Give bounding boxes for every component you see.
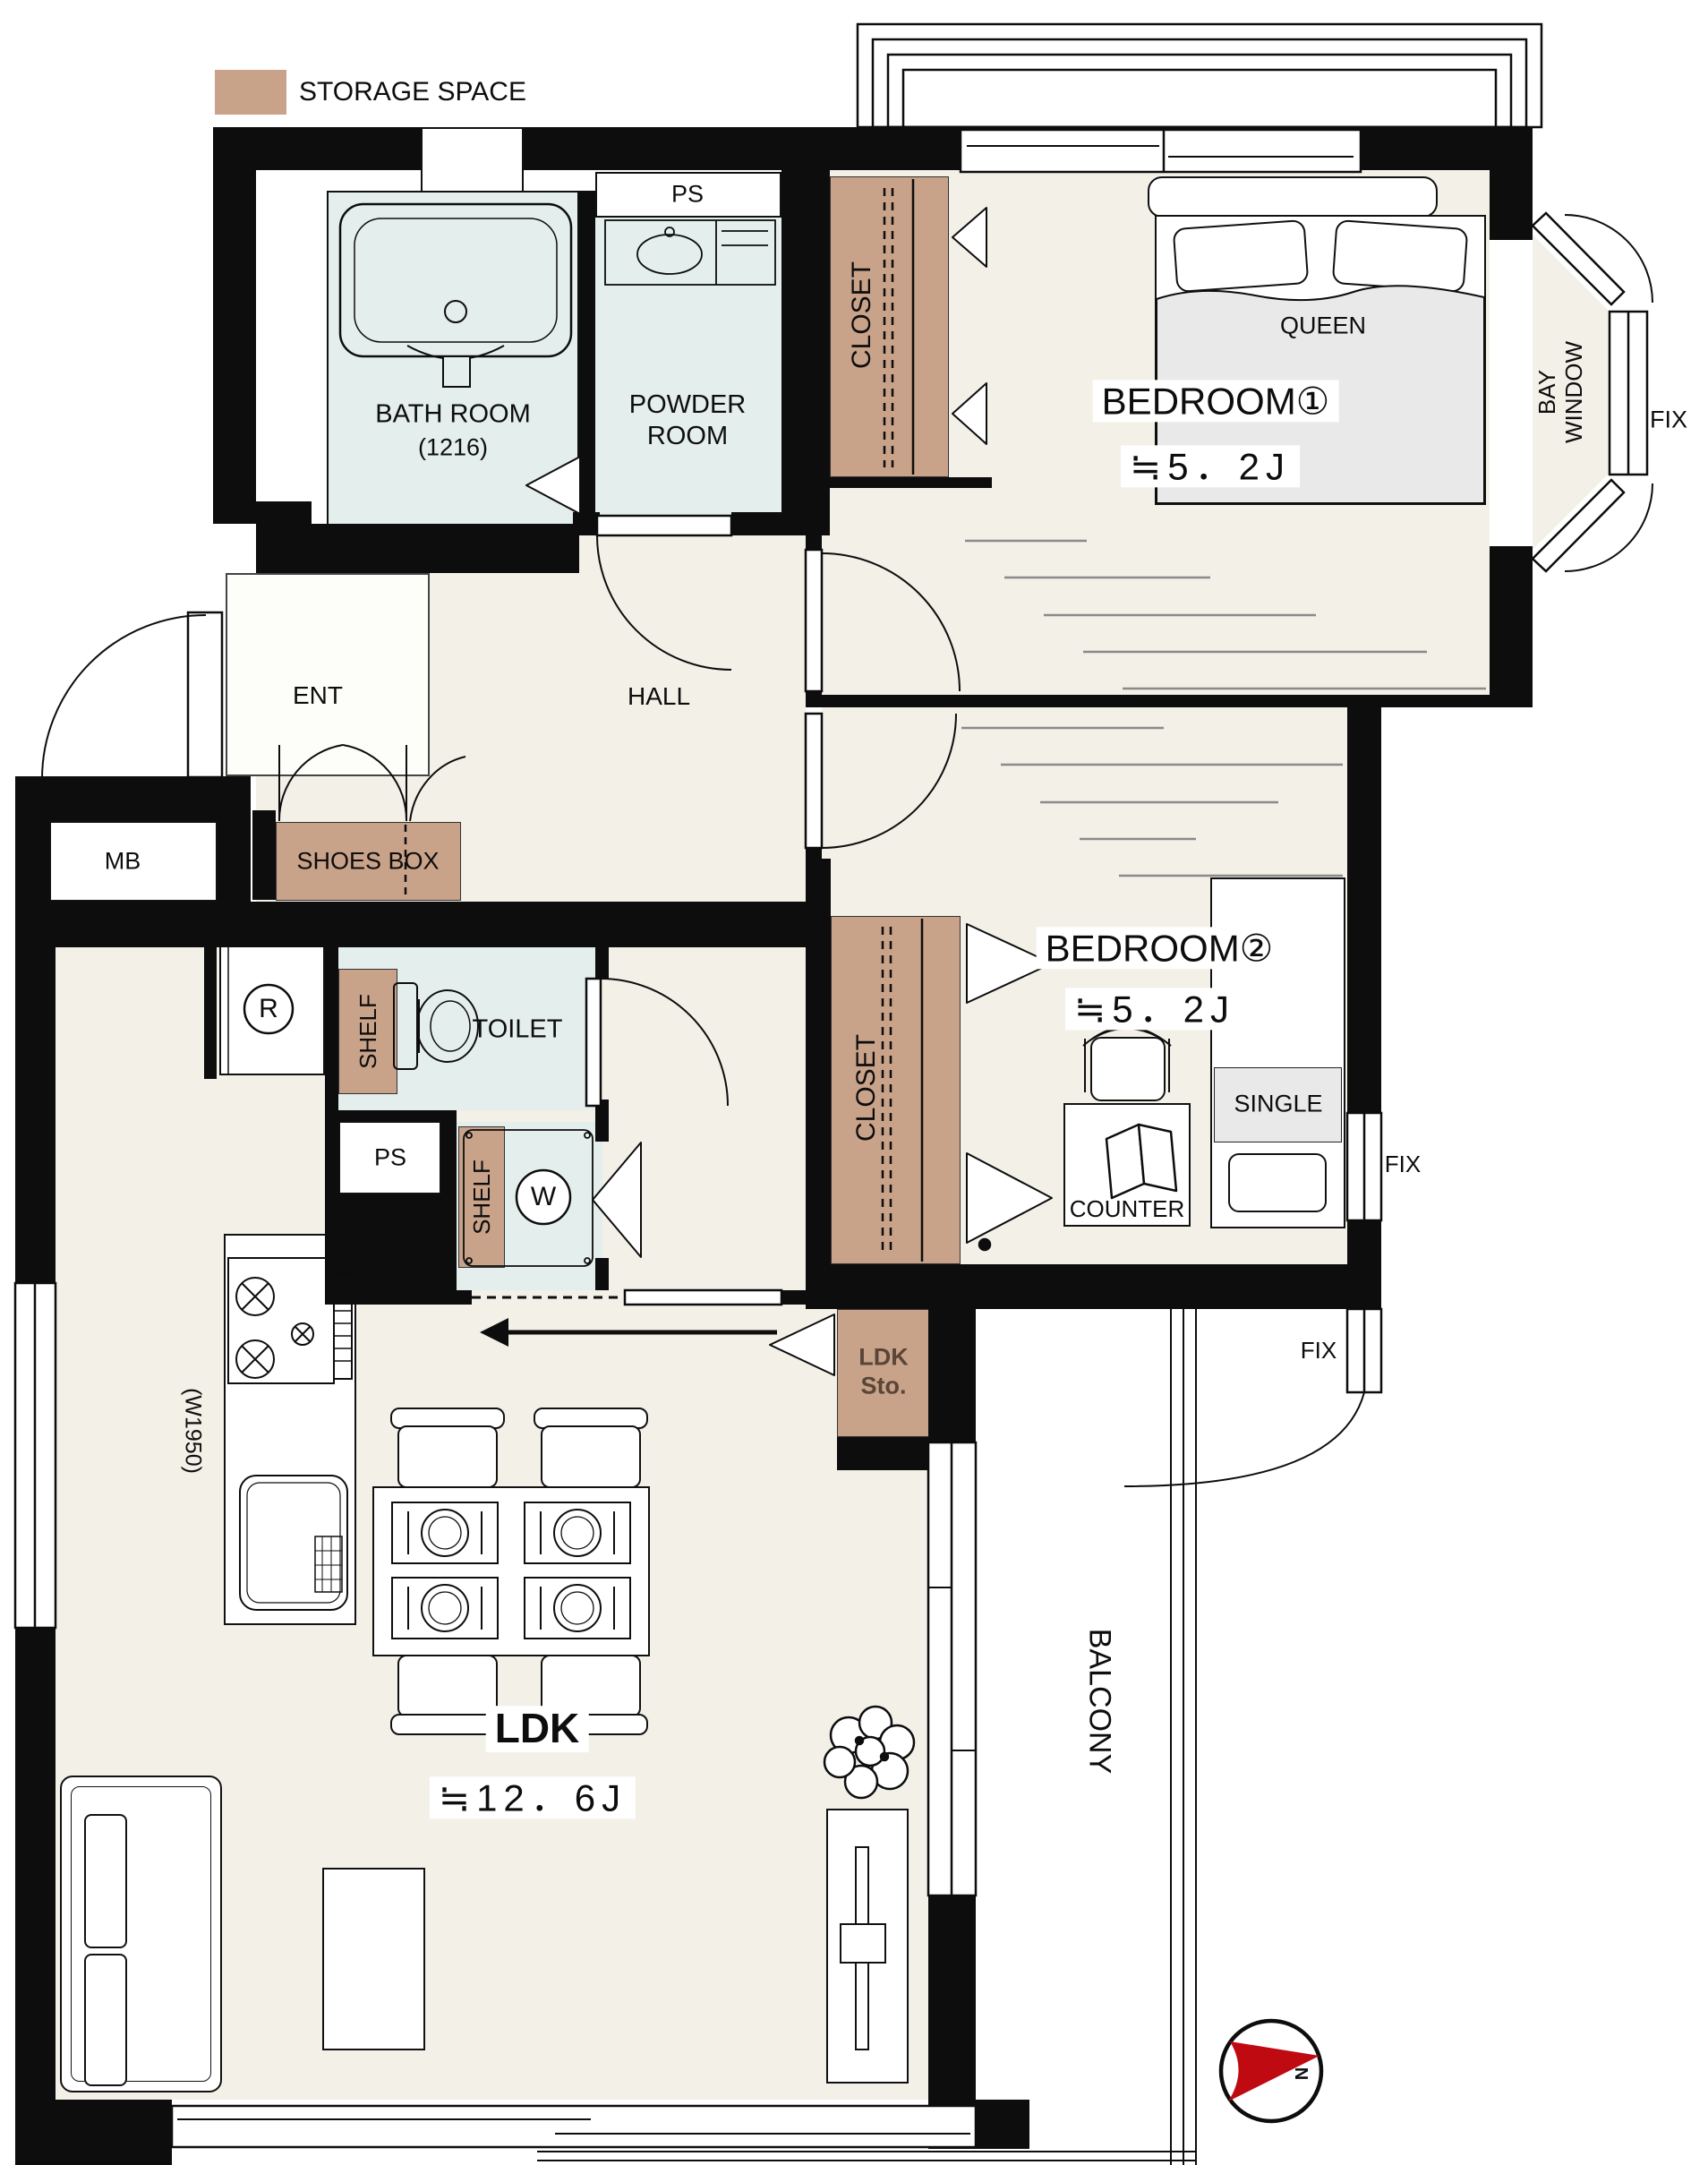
washer-bifold — [593, 1142, 641, 1257]
stove — [228, 1258, 352, 1383]
ldk-label: LDK — [486, 1706, 589, 1752]
shoes-door-arc-3 — [410, 757, 465, 821]
kitchen-width-label: (W1950) — [181, 1388, 205, 1474]
bedroom1-door-leaf — [806, 550, 822, 691]
ldk-bottom-window — [172, 2106, 976, 2147]
fix-bedroom2-bottom-label: FIX — [1301, 1338, 1337, 1363]
closet1-bifold-bottom — [952, 383, 986, 444]
floor-hatch — [961, 541, 1486, 876]
entry-door-leaf — [188, 612, 222, 777]
bedroom1-size-label: ≒5．2J — [1121, 445, 1300, 487]
bathroom-bifold — [526, 457, 580, 514]
bathroom-label: BATH ROOM — [375, 400, 530, 428]
ldk-size-label: ≒12．6J — [430, 1776, 636, 1818]
ldk-sto-label-line1: LDK — [858, 1344, 909, 1370]
powder-door-leaf — [597, 516, 731, 535]
bedroom1-door-arc — [822, 553, 960, 691]
toilet-fixture — [394, 983, 478, 1069]
single-bed-label: SINGLE — [1234, 1091, 1322, 1117]
washer-label: W — [531, 1183, 556, 1211]
upper-veranda-outline — [858, 24, 1541, 127]
refrigerator-label: R — [259, 995, 278, 1023]
shoes-door-arc-2 — [343, 745, 406, 821]
toilet-label: TOILET — [473, 1015, 563, 1043]
hall-label: HALL — [628, 683, 690, 710]
ps-kitchen-label: PS — [374, 1144, 406, 1170]
shoes-door-arc-1 — [279, 745, 343, 821]
mb-label: MB — [105, 848, 141, 874]
bifold-doors — [526, 208, 1052, 1375]
bedroom2-door-leaf — [806, 714, 822, 848]
bedroom2-bottom-fix — [1124, 1309, 1381, 1486]
door-leaves — [188, 516, 822, 1305]
shelf-toilet-label: SHELF — [355, 994, 380, 1069]
bedroom1-label: BEDROOM① — [1093, 380, 1339, 422]
toilet-door-arc — [601, 979, 728, 1106]
bedroom2-door-arc — [822, 714, 956, 848]
legend-label: STORAGE SPACE — [299, 78, 526, 107]
bay-window-label: BAY WINDOW — [1534, 334, 1588, 450]
entry-door-arc — [42, 615, 206, 779]
bedroom2-size-label: ≒5．2J — [1065, 988, 1244, 1030]
shelf-washer-label: SHELF — [469, 1160, 494, 1235]
powder-room-label: POWDER ROOM — [616, 389, 759, 452]
plant — [824, 1707, 914, 1798]
floor-plan: STORAGE SPACE PS BATH ROOM (1216) POWDER… — [0, 0, 1708, 2165]
balcony-label: BALCONY — [1083, 1629, 1116, 1775]
kitchen-sink — [240, 1476, 347, 1610]
fix-bedroom2-side-label: FIX — [1385, 1151, 1421, 1177]
fix-bay-label: FIX — [1650, 406, 1687, 432]
ldk-balcony-window — [928, 1442, 976, 1895]
ldk-sto-bifold — [770, 1314, 834, 1375]
powder-vanity — [605, 220, 775, 285]
closet2-label: CLOSET — [852, 1034, 881, 1142]
closet1-label: CLOSET — [848, 261, 876, 369]
ldk-sliding-door-panel — [625, 1290, 781, 1305]
ent-label: ENT — [293, 682, 343, 709]
queen-bed-label: QUEEN — [1280, 312, 1366, 338]
bathtub — [340, 204, 571, 387]
bathroom-size-label: (1216) — [418, 434, 488, 460]
desk-chair-back — [1083, 1027, 1171, 1092]
closet2-bifold-bottom — [967, 1153, 1052, 1243]
bedroom2-fix-window — [1347, 1113, 1381, 1220]
kitchen-left-window — [15, 1283, 56, 1628]
open-book — [1106, 1125, 1176, 1198]
counter-label: COUNTER — [1070, 1196, 1185, 1221]
powder-door-arc — [597, 535, 731, 670]
shoes-box-label: SHOES BOX — [296, 848, 439, 874]
place-settings — [392, 1502, 630, 1639]
ldk-sto-label-line2: Sto. — [861, 1373, 907, 1399]
toilet-door-leaf — [586, 979, 601, 1106]
bedroom2-label: BEDROOM② — [1037, 927, 1283, 969]
door-stopper-dot — [979, 1239, 990, 1250]
compass-north-label: N — [1290, 2067, 1310, 2080]
ps-upper-label: PS — [671, 181, 704, 207]
bedroom1-top-window — [961, 130, 1361, 172]
closet1-bifold-top — [952, 208, 986, 267]
